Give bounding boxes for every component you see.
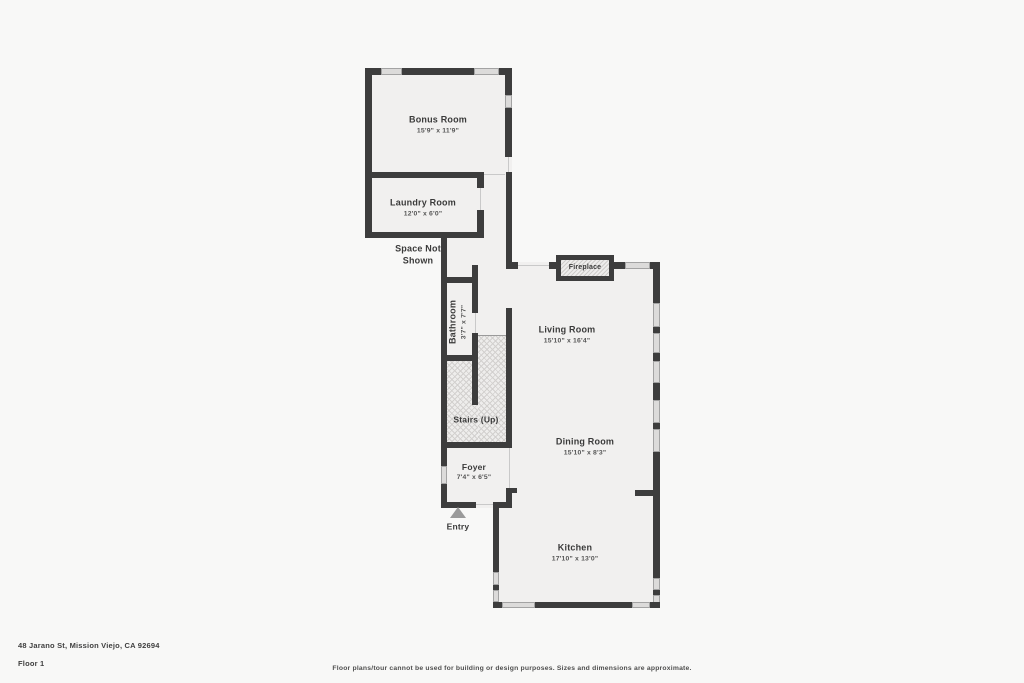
door-threshold xyxy=(518,265,549,266)
wall-segment xyxy=(653,262,660,303)
room-label-kitchen: Kitchen 17'10" x 13'0" xyxy=(552,543,599,564)
window-marker xyxy=(474,68,499,75)
wall-segment xyxy=(472,265,478,313)
room-label-bathroom: Bathroom 3'7" x 7'7" xyxy=(448,300,469,344)
wall-segment xyxy=(614,262,625,269)
wall-segment xyxy=(472,333,478,405)
stairs-hatch xyxy=(478,335,506,443)
wall-segment xyxy=(505,108,512,157)
wall-segment xyxy=(506,262,518,269)
window-marker xyxy=(493,572,499,585)
window-marker xyxy=(653,578,660,590)
window-marker xyxy=(625,262,650,269)
window-marker xyxy=(505,95,512,108)
wall-segment xyxy=(441,442,512,448)
wall-segment xyxy=(653,383,660,400)
wall-segment xyxy=(653,353,660,361)
room-label-dining: Dining Room 15'10" x 8'3" xyxy=(556,437,614,458)
stairs-edge-line xyxy=(478,335,506,336)
opening-threshold xyxy=(484,174,505,175)
floor-plan-page: Fireplace Bonus Room 15'9" x 11'9" Laund… xyxy=(0,0,1024,683)
wall-segment xyxy=(493,508,499,572)
disclaimer-text: Floor plans/tour cannot be used for buil… xyxy=(332,665,691,672)
door-threshold xyxy=(475,313,476,333)
window-marker xyxy=(653,333,660,353)
property-address: 48 Jarano St, Mission Viejo, CA 92694 xyxy=(18,641,160,650)
room-label-laundry: Laundry Room 12'0" x 6'0" xyxy=(390,198,456,219)
window-marker xyxy=(653,361,660,383)
entry-arrow-icon xyxy=(450,507,466,518)
room-label-bonus: Bonus Room 15'9" x 11'9" xyxy=(409,115,467,136)
wall-segment xyxy=(441,238,447,466)
entry-threshold xyxy=(476,504,493,505)
window-marker xyxy=(632,602,650,608)
door-threshold xyxy=(480,188,481,210)
floor-label: Floor 1 xyxy=(18,659,44,668)
wall-segment xyxy=(477,172,484,188)
wall-segment xyxy=(365,232,484,238)
wall-segment xyxy=(441,355,478,361)
window-marker xyxy=(493,590,499,602)
label-space-not-shown: Space Not Shown xyxy=(395,243,441,266)
wall-segment xyxy=(365,172,484,178)
window-marker xyxy=(502,602,535,608)
wall-segment xyxy=(635,490,660,496)
window-marker xyxy=(653,303,660,327)
floor-plan: Fireplace Bonus Room 15'9" x 11'9" Laund… xyxy=(0,0,1024,683)
window-marker xyxy=(653,400,660,423)
fireplace: Fireplace xyxy=(556,255,614,281)
wall-segment xyxy=(506,172,512,268)
fireplace-label: Fireplace xyxy=(569,263,602,272)
wall-segment xyxy=(506,308,512,448)
room-label-living: Living Room 15'10" x 16'4" xyxy=(539,325,596,346)
opening-threshold xyxy=(508,157,509,172)
wall-segment xyxy=(653,452,660,578)
window-marker xyxy=(653,429,660,452)
room-label-foyer: Foyer 7'4" x 6'5" xyxy=(457,462,492,482)
wall-segment xyxy=(512,488,517,493)
door-threshold xyxy=(509,448,510,488)
window-marker xyxy=(381,68,402,75)
window-marker xyxy=(441,466,447,484)
wall-segment xyxy=(365,68,372,238)
label-stairs: Stairs (Up) xyxy=(453,414,498,425)
label-entry: Entry xyxy=(447,521,470,532)
wall-segment xyxy=(505,68,512,95)
